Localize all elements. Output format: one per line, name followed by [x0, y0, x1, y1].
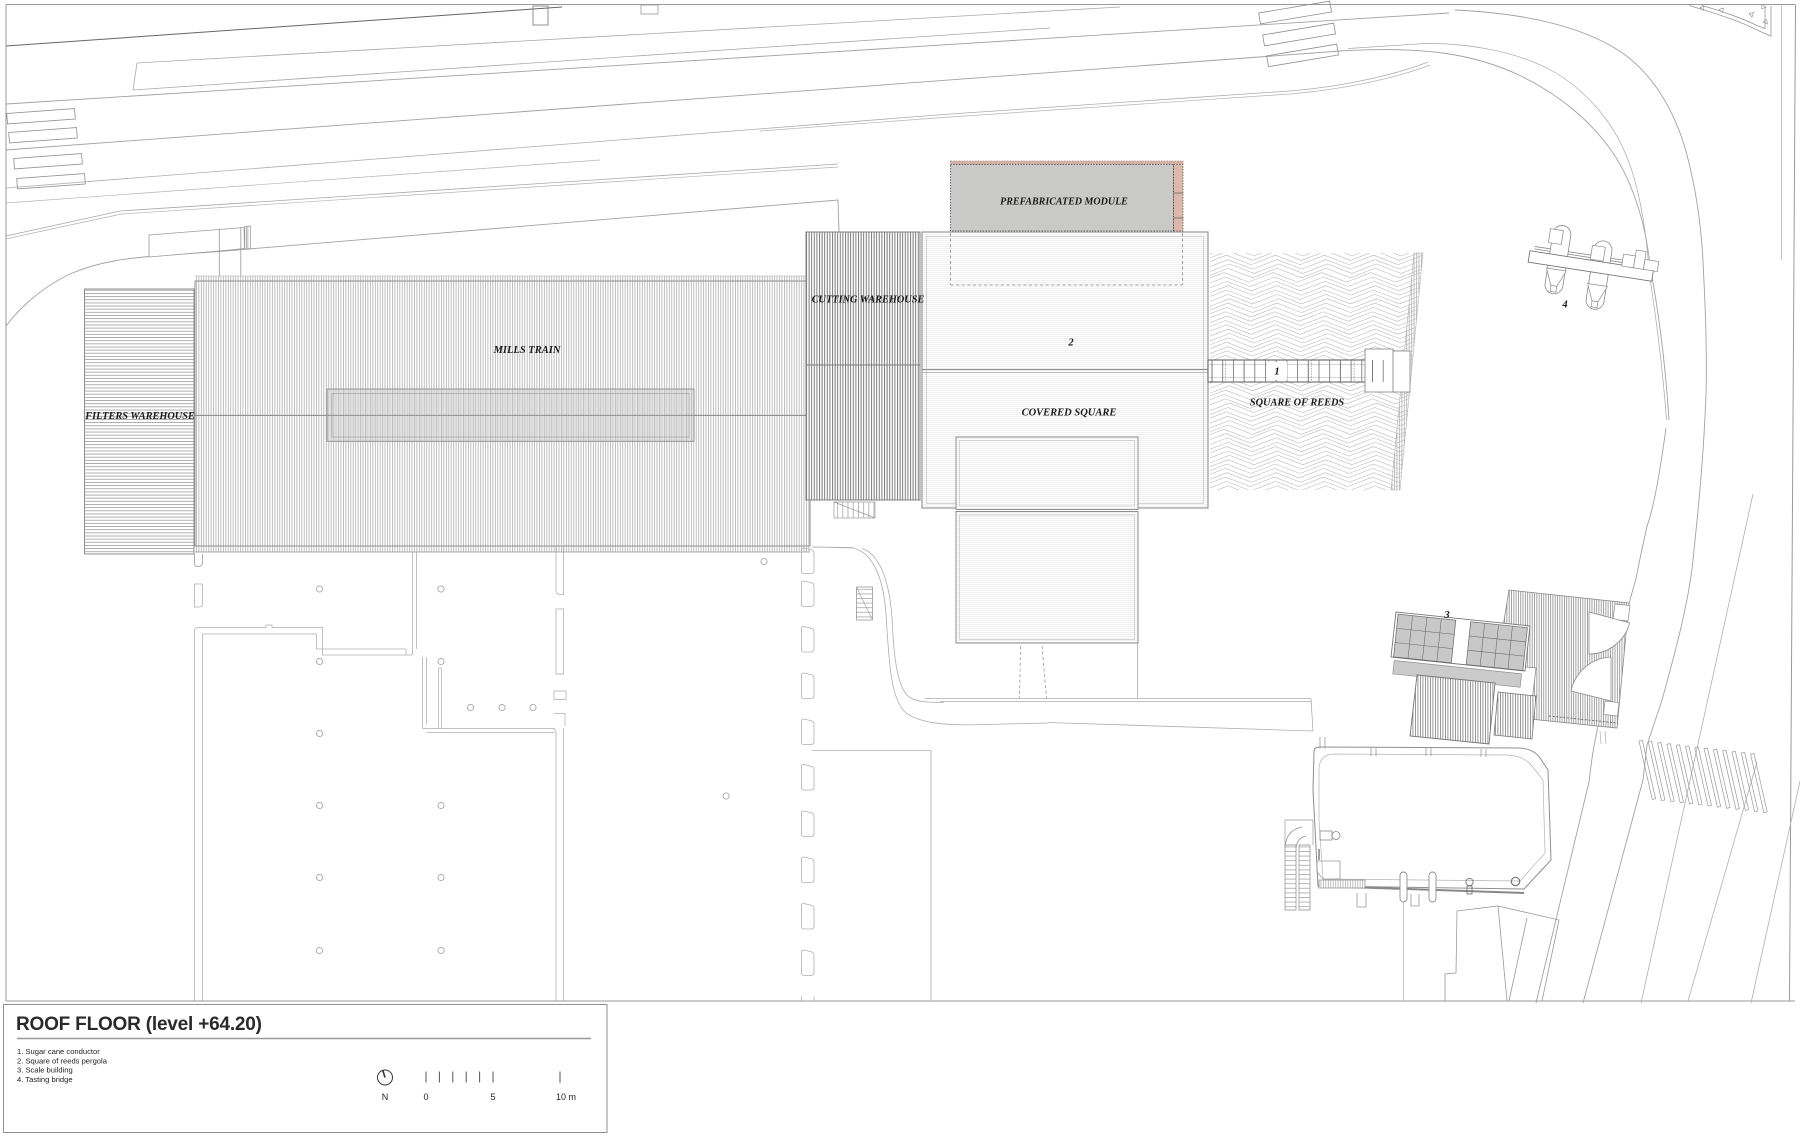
svg-text:3. Scale building: 3. Scale building: [17, 1066, 73, 1075]
svg-text:3: 3: [1443, 610, 1449, 621]
svg-text:1: 1: [1274, 367, 1279, 378]
svg-text:0: 0: [423, 1092, 428, 1102]
svg-text:5: 5: [490, 1092, 495, 1102]
svg-text:SQUARE OF REEDS: SQUARE OF REEDS: [1250, 398, 1345, 409]
svg-text:4: 4: [1561, 300, 1567, 311]
svg-text:1. Sugar cane conductor: 1. Sugar cane conductor: [17, 1047, 100, 1056]
svg-text:4. Tasting bridge: 4. Tasting bridge: [17, 1075, 73, 1084]
svg-text:N: N: [382, 1092, 389, 1102]
svg-text:ROOF FLOOR (level +64.20): ROOF FLOOR (level +64.20): [16, 1014, 262, 1035]
svg-text:MILLS TRAIN: MILLS TRAIN: [493, 345, 561, 356]
svg-text:CUTTING WAREHOUSE: CUTTING WAREHOUSE: [812, 295, 925, 306]
svg-text:COVERED SQUARE: COVERED SQUARE: [1022, 408, 1117, 419]
svg-text:2: 2: [1067, 338, 1074, 349]
svg-text:10 m: 10 m: [556, 1092, 576, 1102]
svg-text:FILTERS WAREHOUSE: FILTERS WAREHOUSE: [84, 411, 195, 422]
svg-text:PREFABRICATED MODULE: PREFABRICATED MODULE: [1000, 197, 1128, 208]
svg-text:2. Square of reeds pergola: 2. Square of reeds pergola: [17, 1056, 108, 1065]
